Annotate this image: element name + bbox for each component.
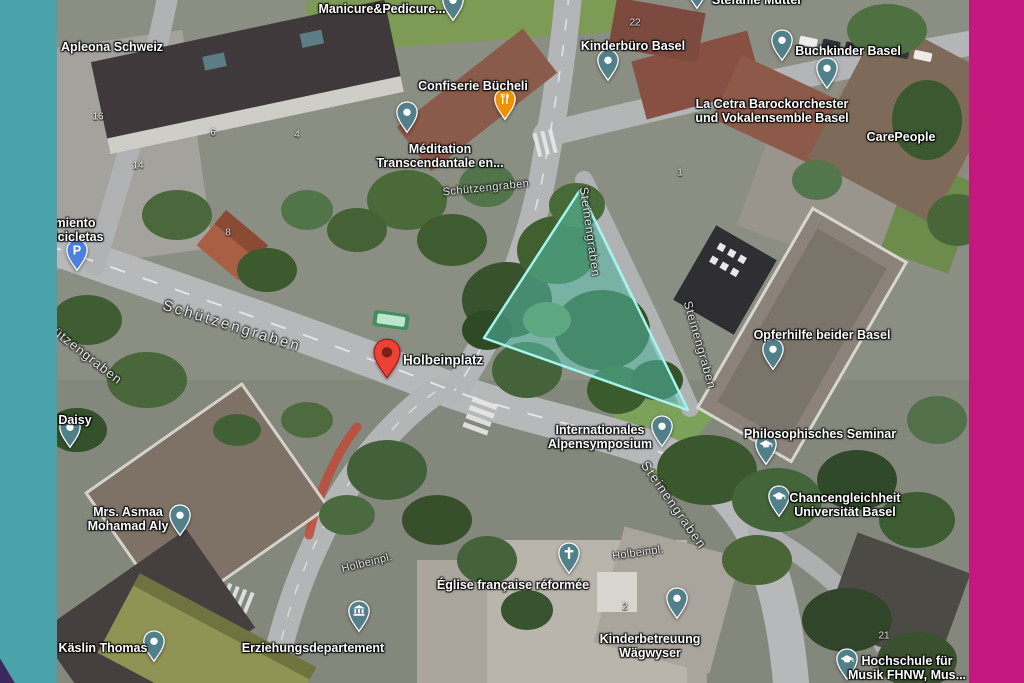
house-number-1: 1 bbox=[677, 168, 683, 179]
poi-label-hochschule[interactable]: Hochschule fürMusik FHNW, Mus... bbox=[848, 654, 966, 682]
poi-buchkinder-pin[interactable] bbox=[770, 29, 794, 62]
poi-stefanie-pin[interactable] bbox=[685, 0, 709, 10]
poi-kinderburo-pin[interactable] bbox=[596, 49, 620, 82]
poi-label-manicure[interactable]: Manicure&Pedicure... bbox=[318, 2, 445, 16]
svg-text:P: P bbox=[73, 244, 81, 258]
poi-label-kinderbetreuung[interactable]: KinderbetreuungWägwyser bbox=[600, 632, 701, 660]
house-number-8: 8 bbox=[225, 228, 231, 239]
poi-label-kaslin[interactable]: Käslin Thomas bbox=[59, 641, 148, 655]
house-number-14: 14 bbox=[132, 161, 143, 172]
poi-label-opferhilfe[interactable]: Opferhilfe beider Basel bbox=[754, 328, 891, 342]
house-number-16: 16 bbox=[92, 112, 103, 123]
poi-label-apleona[interactable]: Apleona Schweiz bbox=[61, 40, 163, 54]
poi-chancengleichheit-pin[interactable] bbox=[767, 485, 791, 518]
satellite-map[interactable]: Apleona SchweizManicure&Pedicure...Stefa… bbox=[57, 0, 969, 683]
poi-label-lacetra[interactable]: La Cetra Barockorchesterund Vokalensembl… bbox=[695, 97, 848, 125]
poi-erziehung-pin[interactable] bbox=[347, 600, 371, 633]
poi-opferhilfe-pin[interactable] bbox=[761, 338, 785, 371]
house-number-21: 21 bbox=[878, 631, 889, 642]
poi-label-stefanie[interactable]: Stefanie Mutter bbox=[712, 0, 802, 7]
poi-label-eglise[interactable]: Église française réformée bbox=[437, 578, 589, 592]
poi-label-alpensymposium[interactable]: InternationalesAlpensymposium bbox=[548, 423, 652, 451]
left-accent-bar bbox=[0, 0, 57, 683]
house-number-22: 22 bbox=[629, 18, 640, 29]
poi-meditation-pin[interactable] bbox=[395, 101, 419, 134]
poi-label-kinderburo[interactable]: Kinderbüro Basel bbox=[581, 39, 685, 53]
poi-label-buchkinder[interactable]: Buchkinder Basel bbox=[795, 44, 901, 58]
poi-label-philosophisches[interactable]: Philosophisches Seminar bbox=[744, 427, 896, 441]
poi-label-confiserie[interactable]: Confiserie Bücheli bbox=[418, 79, 528, 93]
poi-carepeople-pin[interactable] bbox=[815, 57, 839, 90]
poi-label-asmaa[interactable]: Mrs. AsmaaMohamad Aly bbox=[88, 505, 169, 533]
poi-label-bicicletas[interactable]: mientobicicletas bbox=[57, 216, 103, 244]
poi-alpensymposium-pin[interactable] bbox=[650, 415, 674, 448]
holbeinplatz-marker-label: Holbeinplatz bbox=[403, 353, 483, 368]
right-accent-bar bbox=[969, 0, 1024, 683]
poi-label-erziehung[interactable]: Erziehungsdepartement bbox=[242, 641, 384, 655]
poi-label-carepeople[interactable]: CarePeople bbox=[867, 130, 936, 144]
poi-kinderbetreuung-pin[interactable] bbox=[665, 587, 689, 620]
house-number-6: 6 bbox=[210, 128, 216, 139]
poi-asmaa-pin[interactable] bbox=[168, 504, 192, 537]
house-number-4: 4 bbox=[294, 130, 300, 141]
house-number-2: 2 bbox=[622, 602, 628, 613]
holbeinplatz-marker[interactable] bbox=[372, 338, 402, 380]
poi-eglise-pin[interactable] bbox=[557, 542, 581, 575]
poi-label-chancengleichheit[interactable]: ChancengleichheitUniversität Basel bbox=[789, 491, 900, 519]
poi-label-meditation[interactable]: MéditationTranscendantale en... bbox=[376, 142, 503, 170]
poi-label-daisy[interactable]: Daisy bbox=[58, 413, 91, 427]
screenshot-stage: Apleona SchweizManicure&Pedicure...Stefa… bbox=[0, 0, 1024, 683]
